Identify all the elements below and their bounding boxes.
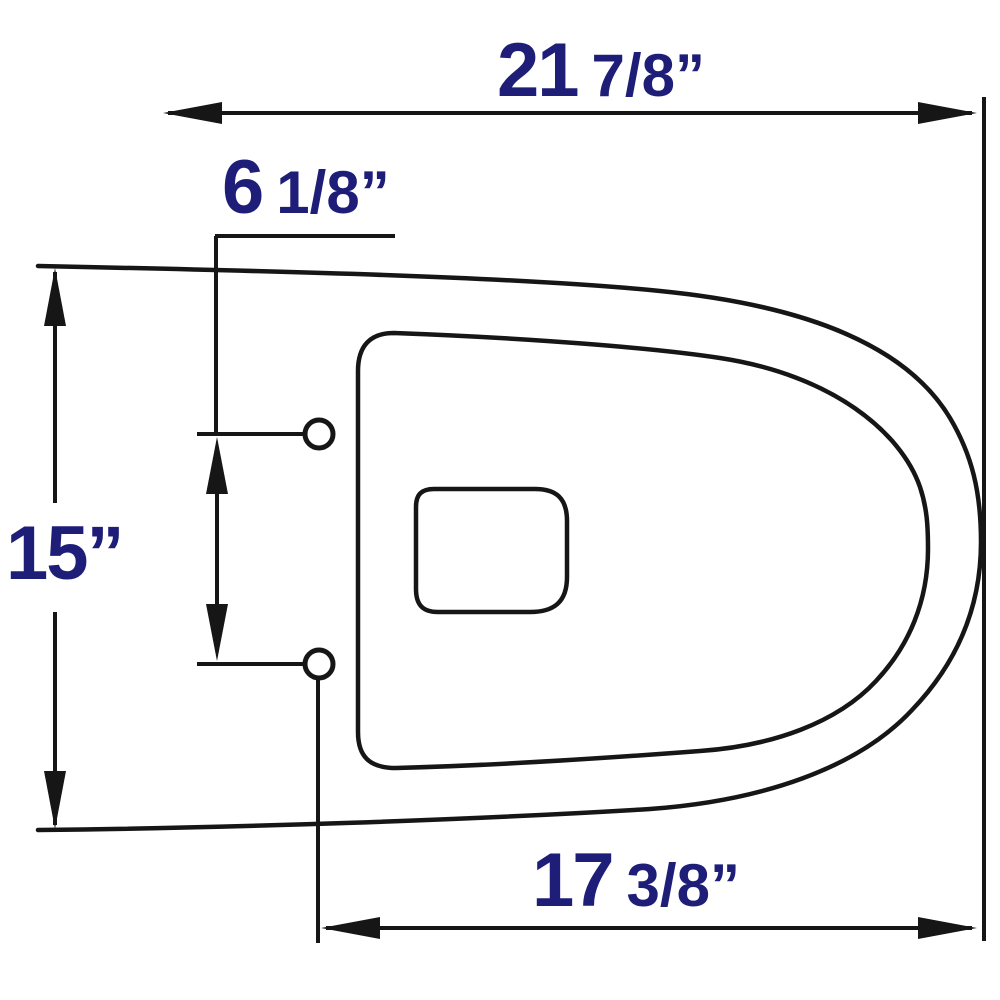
arrowhead-bolt-spacing-up [206,437,228,494]
arrowhead-top-left [163,102,222,124]
dim-label-bolt-offset-fraction: 1/8” [276,163,389,223]
dim-label-bottom-width-fraction: 3/8” [627,856,740,916]
outer-rim-outline [38,266,981,830]
dim-label-top-width-fraction: 7/8” [592,46,705,106]
dimension-diagram: 21 7/8” 6 1/8” 15” 17 3/8” [0,0,1000,1000]
dim-label-bolt-offset: 6 1/8” [222,150,390,226]
water-spot-outline [416,489,567,612]
dim-label-top-width-whole: 21 [497,33,578,109]
dim-label-bottom-width-whole: 17 [532,843,613,919]
dim-label-height-whole: 15” [6,516,123,592]
diagram-canvas [0,0,1000,1000]
arrowhead-top-right [918,102,977,124]
dim-label-bolt-offset-whole: 6 [222,150,262,226]
arrowhead-height-up [44,268,66,326]
toilet-outlines [38,266,981,830]
bolt-hole-top [305,420,333,448]
arrowhead-bottom-left [321,917,380,939]
seat-opening-outline [358,333,928,768]
dim-label-height: 15” [6,516,137,592]
arrowhead-height-down [44,771,66,829]
bolt-hole-bottom [305,650,333,678]
arrowhead-bolt-spacing-down [206,604,228,661]
arrowhead-bottom-right [918,917,977,939]
dim-label-bottom-width: 17 3/8” [532,843,740,919]
dim-label-top-width: 21 7/8” [497,33,705,109]
